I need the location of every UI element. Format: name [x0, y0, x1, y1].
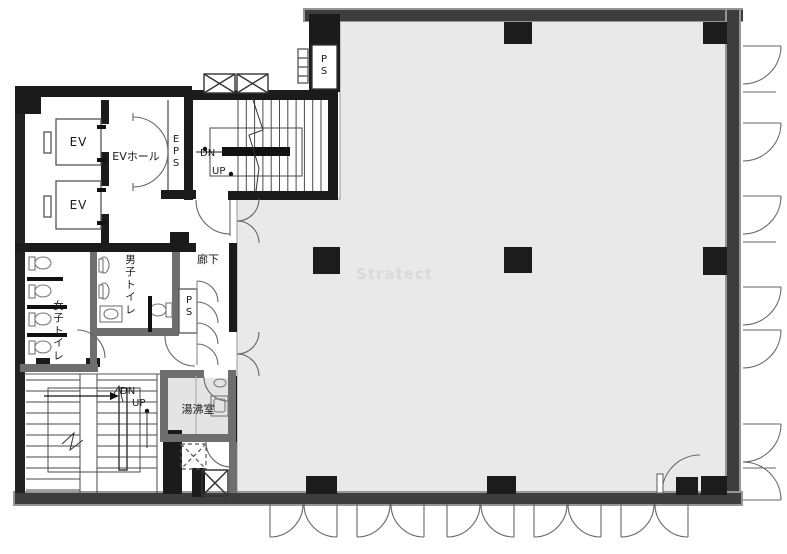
room-label-ps-mid: PS	[184, 295, 194, 319]
stairs-lower-up-label: UP	[132, 398, 145, 409]
room-label-mens-toilet: 男子トイレ	[124, 254, 137, 316]
room-label-eps: EPS	[171, 134, 181, 169]
floor-plan: EV EV EVホール EPS PS PS 廊下 男子トイレ 女子トイレ 湯沸室…	[0, 0, 787, 554]
stairs-lower-dn-label: DN	[120, 386, 135, 397]
room-label-corridor: 廊下	[197, 251, 219, 267]
room-label-ev-top: EV	[56, 119, 101, 165]
stairs-upper-up-label: UP	[212, 166, 225, 177]
room-label-womens-toilet: 女子トイレ	[52, 300, 65, 362]
watermark: Stratect	[356, 265, 433, 283]
room-label-ev-bottom: EV	[56, 181, 101, 229]
room-label-kitchenette: 湯沸室	[167, 401, 229, 417]
service-boxes	[181, 442, 231, 496]
stairs-lower	[24, 374, 160, 493]
room-label-ps-top: PS	[319, 54, 329, 78]
room-label-ev-hall: EVホール	[96, 148, 176, 164]
stairs-upper-dn-label: DN	[200, 148, 215, 159]
